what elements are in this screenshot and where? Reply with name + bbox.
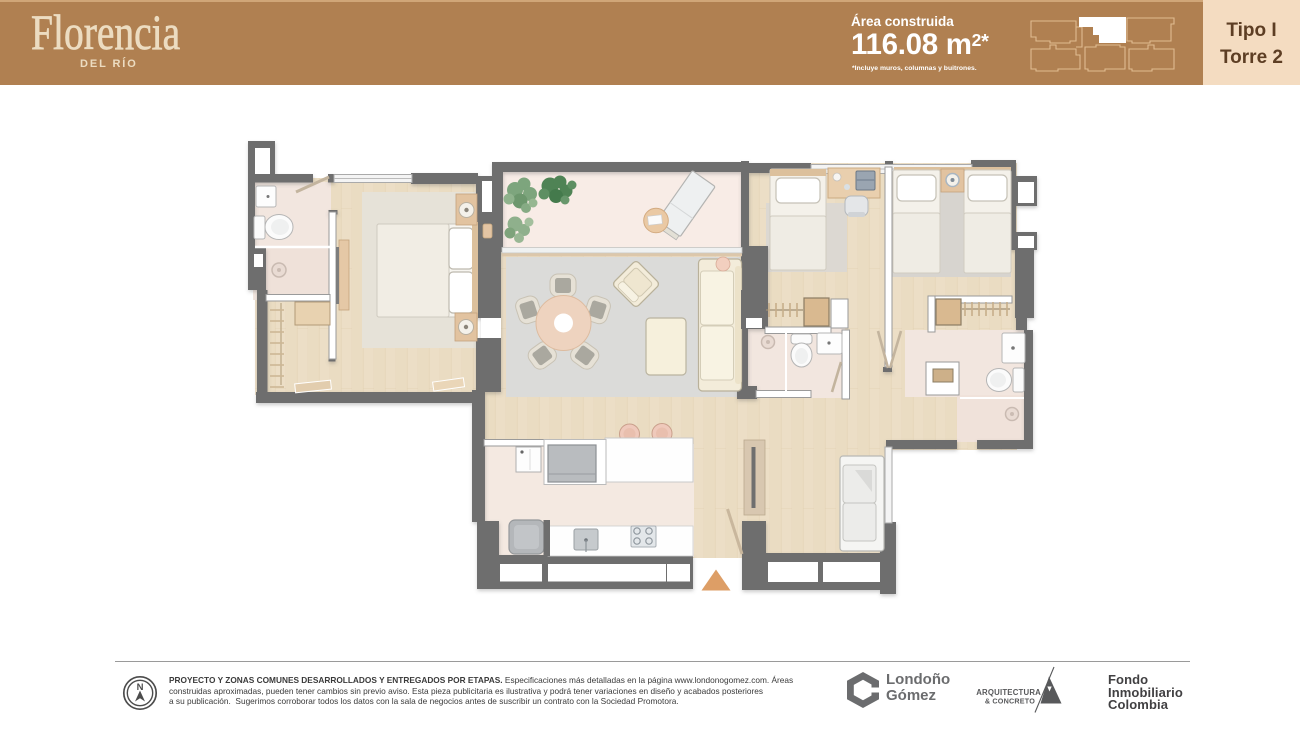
svg-text:& CONCRETO: & CONCRETO [985, 697, 1035, 706]
